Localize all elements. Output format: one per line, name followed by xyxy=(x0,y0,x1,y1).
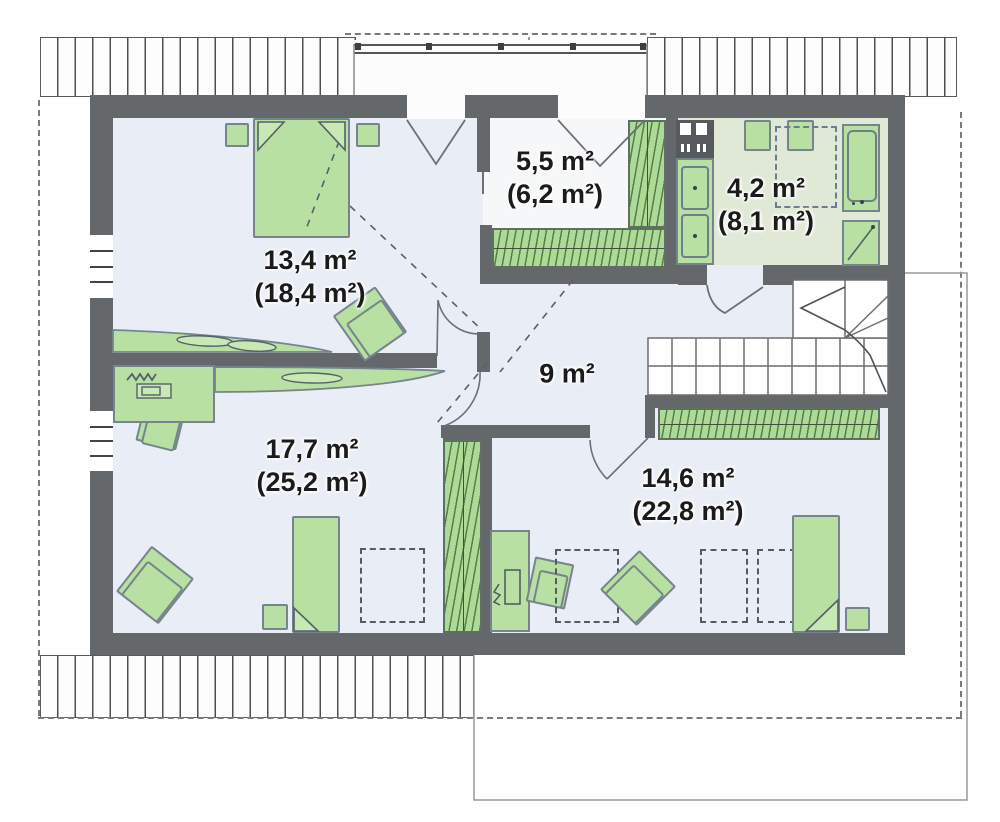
room-label-bedroom-bottom-left: 17,7 m² (25,2 m²) xyxy=(256,433,367,499)
room-area-total: (8,1 m²) xyxy=(718,205,814,238)
room-area: 5,5 m² xyxy=(507,145,603,178)
room-label-bedroom-bottom-right: 14,6 m² (22,8 m²) xyxy=(632,462,743,528)
shower-glass-line xyxy=(848,226,874,260)
staircase xyxy=(648,280,888,395)
room-area-total: (22,8 m²) xyxy=(632,495,743,528)
balcony-door-left xyxy=(407,120,465,164)
room-area-total: (25,2 m²) xyxy=(256,466,367,499)
room-area: 14,6 m² xyxy=(632,462,743,495)
computer-on-desk xyxy=(494,570,520,605)
balcony-rail-posts xyxy=(355,43,646,50)
linework-overlay xyxy=(0,0,1000,822)
bathroom-door xyxy=(707,285,763,313)
bedroom2-door-arc xyxy=(441,372,480,427)
room-area: 17,7 m² xyxy=(256,433,367,466)
builtin-desk-shelves xyxy=(113,330,445,392)
floor-plan: 13,4 m² (18,4 m²) 5,5 m² (6,2 m²) 4,2 m²… xyxy=(0,0,1000,822)
room-area-total: (6,2 m²) xyxy=(507,178,603,211)
room-label-hall: 9 m² xyxy=(539,358,595,391)
room-area-total: (18,4 m²) xyxy=(254,277,365,310)
room-area: 9 m² xyxy=(539,358,595,391)
bedroom1-door-arc xyxy=(437,300,478,356)
room-label-bathroom: 4,2 m² (8,1 m²) xyxy=(718,172,814,238)
room-label-bedroom-top-left: 13,4 m² (18,4 m²) xyxy=(254,244,365,310)
room-area: 13,4 m² xyxy=(254,244,365,277)
room-area: 4,2 m² xyxy=(718,172,814,205)
room-label-closet: 5,5 m² (6,2 m²) xyxy=(507,145,603,211)
